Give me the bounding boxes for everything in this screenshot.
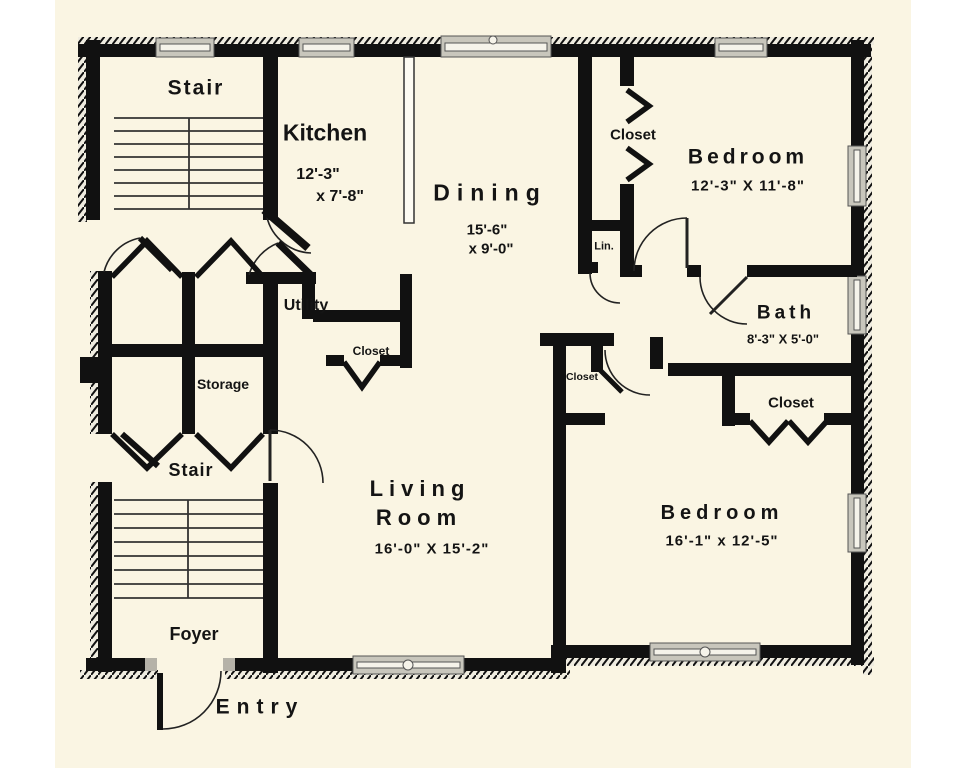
entry-label: Entry — [216, 697, 305, 718]
stair-treads-upper — [114, 118, 263, 209]
stair-treads-lower — [114, 500, 263, 598]
interior-walls — [98, 44, 858, 673]
room-label-kitchen: Kitchen — [283, 122, 367, 145]
bath-dimensions: 8'-3" X 5'-0" — [747, 333, 819, 346]
kitchen-dimension-line1: 12'-3" — [296, 167, 339, 183]
room-label-storage: Storage — [197, 377, 249, 391]
room-label-closet-utility: Closet — [353, 345, 390, 357]
room-label-living-line1: Living — [370, 478, 471, 500]
exterior-hatch-bands — [78, 37, 874, 679]
living-room-dimensions: 16'-0" X 15'-2" — [375, 542, 490, 557]
room-label-foyer: Foyer — [169, 625, 218, 643]
room-label-bedroom-top: Bedroom — [688, 147, 808, 168]
room-label-closet-mid: Closet — [566, 372, 598, 383]
room-label-linen-closet: Lin. — [594, 242, 614, 253]
room-label-living-line2: Room — [376, 507, 462, 529]
floor-plan-page: Stair Kitchen 12'-3" x 7'-8" Dining 15'-… — [0, 0, 964, 768]
room-label-closet-bedroom2: Closet — [768, 396, 814, 411]
dining-dimension-line2: x 9'-0" — [469, 242, 514, 257]
room-label-bath: Bath — [757, 304, 815, 323]
room-label-stair-upper: Stair — [168, 78, 225, 99]
room-label-bedroom-main: Bedroom — [661, 503, 784, 523]
room-label-closet-top: Closet — [610, 128, 656, 143]
room-label-stair-lower: Stair — [168, 461, 213, 479]
room-label-utility: Utility — [284, 298, 328, 314]
bedroom-top-dimensions: 12'-3" X 11'-8" — [691, 179, 805, 194]
room-label-dining: Dining — [433, 182, 547, 205]
bedroom-main-dimensions: 16'-1" x 12'-5" — [665, 534, 778, 549]
floor-plan-drawing — [0, 0, 964, 768]
kitchen-dimension-line2: x 7'-8" — [316, 189, 364, 205]
dining-dimension-line1: 15'-6" — [467, 223, 508, 238]
